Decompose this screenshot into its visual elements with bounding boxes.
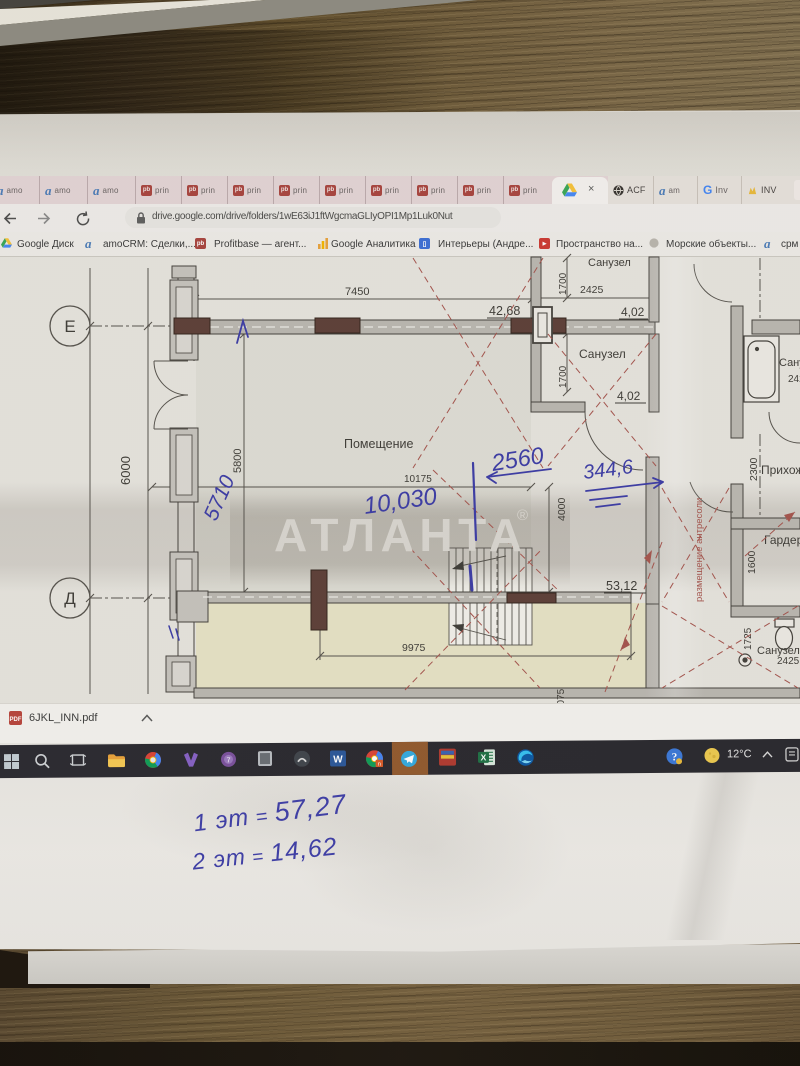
svg-text:2425: 2425 — [788, 374, 800, 385]
svg-text:X: X — [481, 752, 487, 762]
svg-text:9975: 9975 — [402, 642, 426, 654]
svg-text:2425: 2425 — [777, 656, 800, 667]
svg-text:5800: 5800 — [232, 449, 244, 473]
svg-text:АТЛАНТА: АТЛАНТА — [274, 509, 528, 561]
svg-text:n: n — [378, 762, 381, 768]
svg-text:®: ® — [517, 507, 528, 524]
svg-text:1725: 1725 — [743, 627, 754, 650]
svg-text:Санузел: Санузел — [579, 347, 626, 361]
svg-text:4000: 4000 — [556, 497, 568, 521]
svg-text:53,12: 53,12 — [606, 579, 637, 593]
svg-text:Д: Д — [64, 589, 76, 608]
svg-text:PDF: PDF — [10, 717, 22, 723]
svg-text:7: 7 — [227, 757, 231, 764]
svg-text:7450: 7450 — [345, 286, 369, 298]
svg-text:Санузел: Санузел — [779, 357, 800, 369]
svg-text:6000: 6000 — [118, 456, 133, 485]
svg-text:W: W — [333, 754, 343, 765]
svg-text:2425: 2425 — [580, 284, 604, 296]
svg-text:Гардер: Гардер — [764, 533, 800, 547]
svg-text:344,6: 344,6 — [582, 456, 635, 484]
svg-text:Прихож: Прихож — [761, 463, 800, 477]
svg-text:4,02: 4,02 — [617, 389, 641, 403]
svg-text:размещение антресоли: размещение антресоли — [694, 498, 705, 602]
svg-text:42,68: 42,68 — [489, 304, 520, 318]
svg-text:1700: 1700 — [558, 272, 569, 295]
svg-text:4,02: 4,02 — [621, 305, 645, 319]
svg-text:2300: 2300 — [748, 457, 760, 481]
svg-text:Помещение: Помещение — [344, 437, 413, 451]
svg-text:Е: Е — [64, 317, 75, 336]
svg-text:Санузел: Санузел — [588, 257, 631, 269]
svg-text:1700: 1700 — [558, 365, 569, 388]
